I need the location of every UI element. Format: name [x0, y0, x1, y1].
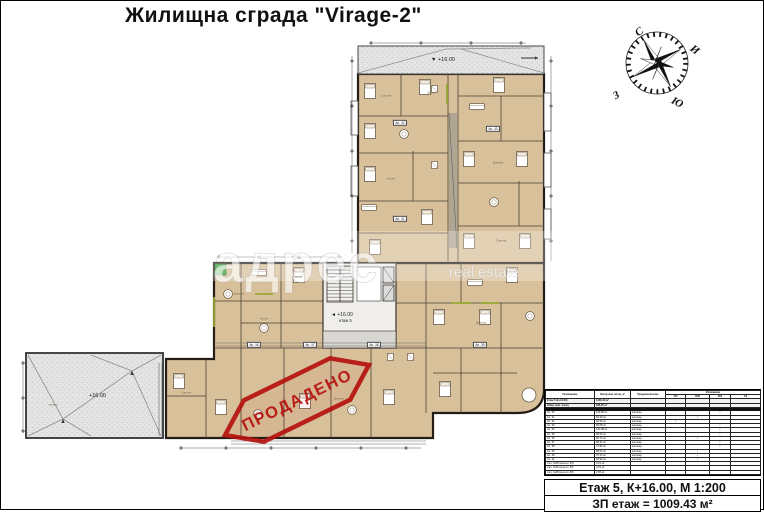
compass-rose: С И Ю З: [610, 25, 702, 111]
top-roof-elevation: ▼ +16.00: [431, 57, 455, 63]
core-floor-label: етаж 5: [339, 318, 352, 323]
watermark-main: адрес: [213, 234, 380, 294]
col-header-area: Застроена площ, м²: [595, 391, 631, 399]
col-header-room: Помещение: [546, 391, 595, 399]
table-cell: [686, 470, 710, 474]
compass-north: С: [633, 25, 646, 39]
apartment-schedule-table: Помещение Застроена площ, м² Предназначе…: [544, 389, 761, 476]
table-cell: 2.95 м²: [595, 470, 631, 474]
table-cell: [666, 470, 686, 474]
compass-east: И: [687, 42, 702, 58]
floorplan-sheet: { "title": "Жилищна сграда \"Virage-2\""…: [0, 0, 764, 510]
left-roof-elevation: +16.00: [89, 393, 106, 399]
table-cell: [731, 470, 761, 474]
compass-south: Ю: [668, 94, 685, 111]
table-cell: Скл. №38 (към ап. 38): [546, 470, 595, 474]
compass-west: З: [610, 89, 622, 103]
table-cell: [631, 470, 666, 474]
table-row: Скл. №38 (към ап. 38)2.95 м²: [546, 470, 761, 474]
watermark-sub: real estate: [449, 264, 519, 281]
col-header-destination: Предназначение: [631, 391, 666, 399]
sheet-footer-area: ЗП етаж = 1009.43 м²: [544, 495, 761, 512]
table-cell: [710, 470, 731, 474]
